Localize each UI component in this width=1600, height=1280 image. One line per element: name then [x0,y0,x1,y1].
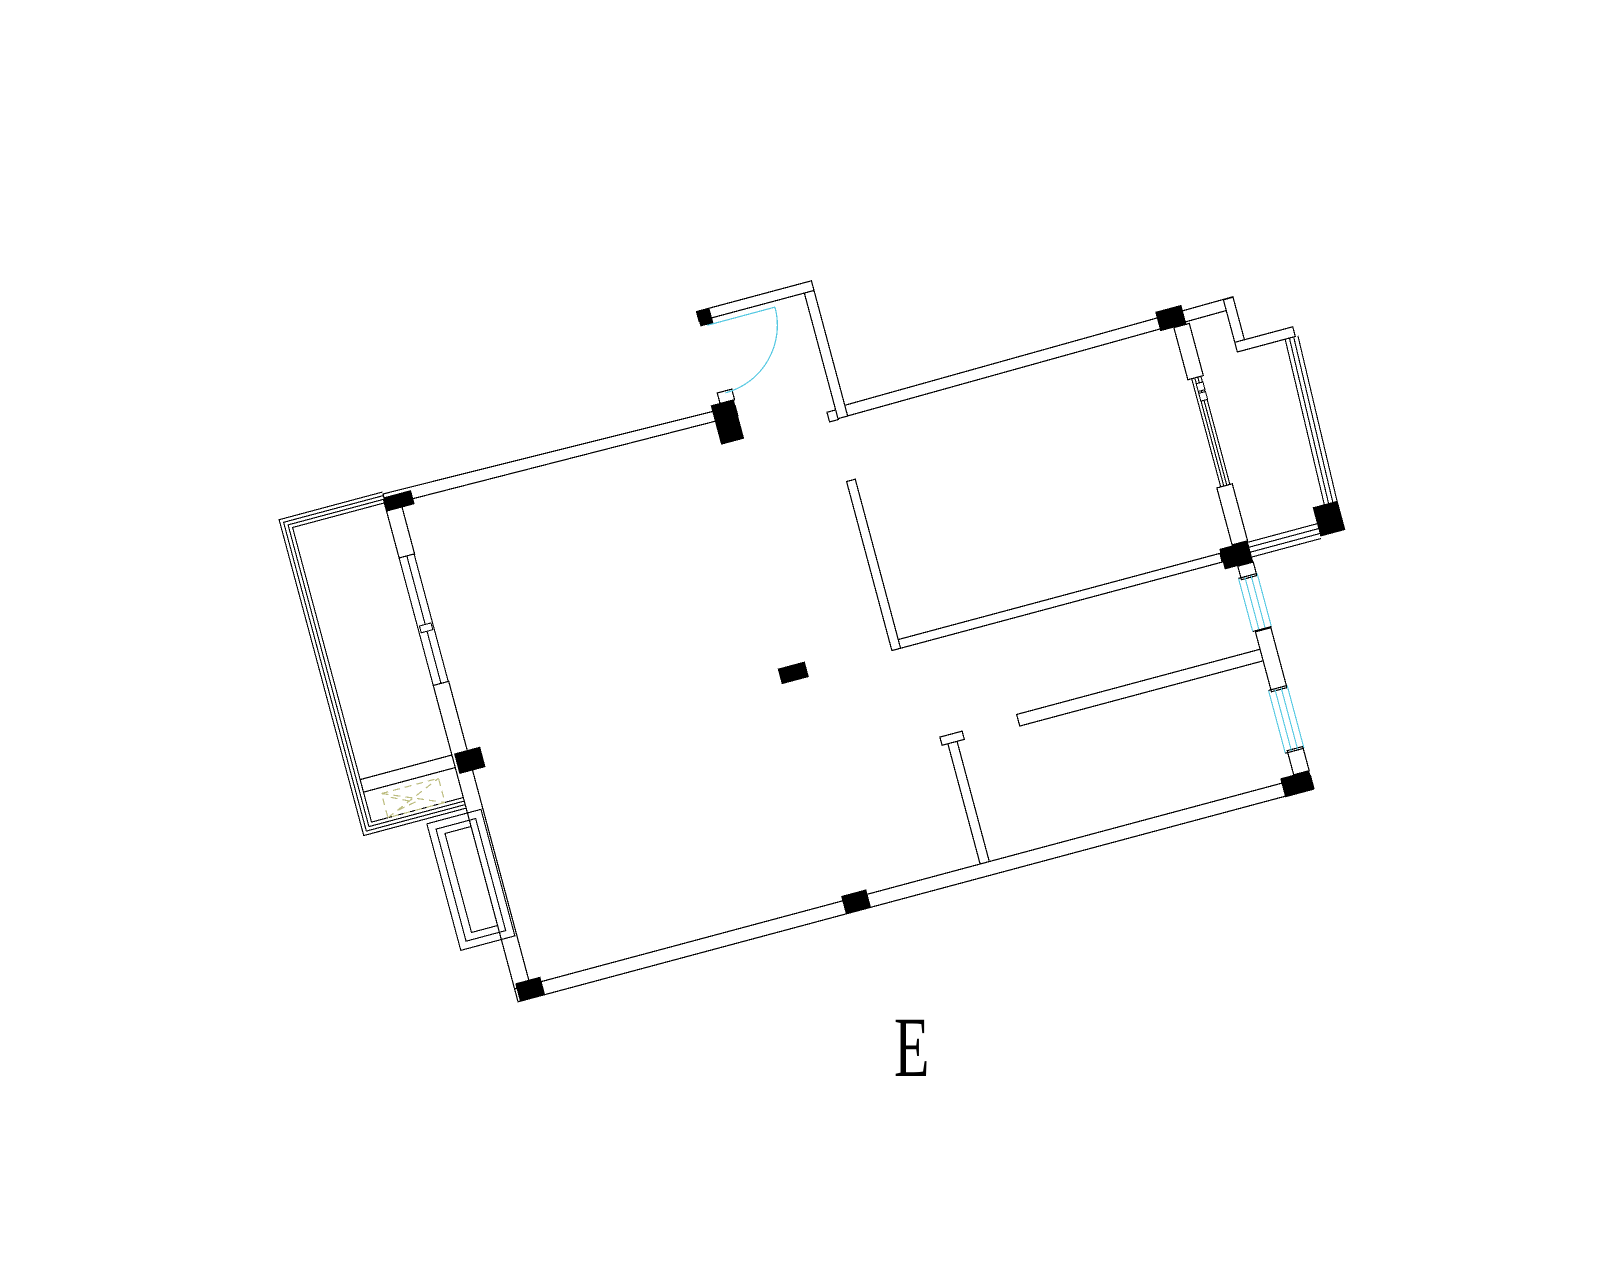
svg-text:E: E [894,1000,929,1095]
